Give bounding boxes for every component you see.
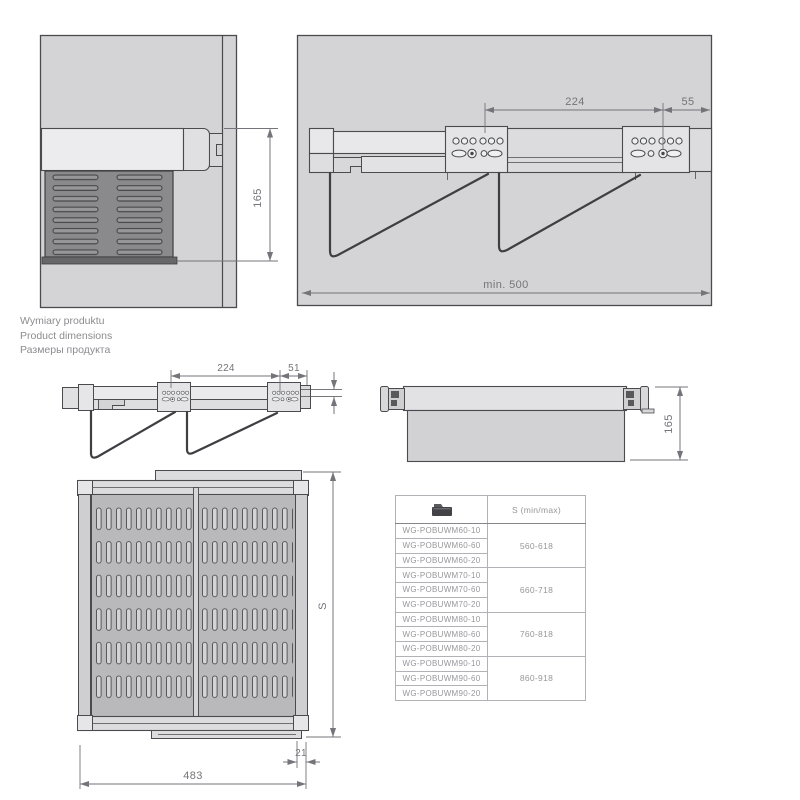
- dim-label-front-224: 224: [217, 363, 235, 374]
- dim-label-cabinet-165: 165: [252, 188, 264, 208]
- rail-top-bar: [334, 132, 448, 154]
- catalog-page: 165 224: [0, 0, 800, 800]
- table-row: WG-POBUWM80-10 760-818: [396, 612, 586, 627]
- product-code: WG-POBUWM70-20: [396, 597, 488, 612]
- product-code: WG-POBUWM70-10: [396, 568, 488, 583]
- caption-block: Wymiary produktu Product dimensions Разм…: [20, 314, 112, 358]
- size-table: S (min/max) WG-POBUWM60-10 560-618 WG-PO…: [395, 495, 586, 701]
- product-code: WG-POBUWM80-20: [396, 642, 488, 657]
- dim-label-front-51: 51: [288, 363, 300, 374]
- wall-rail-view: [298, 36, 712, 306]
- size-range: 860-918: [488, 656, 586, 700]
- dim-label-depth-S: S: [317, 602, 329, 610]
- product-code: WG-POBUWM60-60: [396, 538, 488, 553]
- product-code: WG-POBUWM90-20: [396, 686, 488, 701]
- product-column-header: [396, 496, 488, 524]
- mounting-plate-right: [623, 127, 690, 173]
- dim-label-offset-21: 21: [295, 748, 307, 759]
- drawer-folder-icon: [431, 503, 453, 517]
- size-column-header: S (min/max): [488, 496, 586, 524]
- cabinet-section-view: [41, 36, 237, 308]
- dim-label-offset-55: 55: [681, 96, 694, 108]
- front-plate-right: [268, 383, 301, 412]
- product-code: WG-POBUWM60-20: [396, 553, 488, 568]
- size-range: 760-818: [488, 612, 586, 656]
- caption-ru: Размеры продукта: [20, 343, 112, 358]
- product-code: WG-POBUWM80-10: [396, 612, 488, 627]
- front-rail-view: [63, 383, 343, 458]
- size-range: 560-618: [488, 524, 586, 568]
- telescopic-track: [508, 129, 624, 173]
- rail-bracket: [184, 129, 210, 171]
- basket-top-view: [78, 471, 309, 739]
- caption-en: Product dimensions: [20, 329, 112, 344]
- table-row: WG-POBUWM90-10 860-918: [396, 656, 586, 671]
- dim-label-min-depth: min. 500: [483, 279, 528, 291]
- basket-side-view: [381, 387, 655, 462]
- back-rail: [156, 471, 302, 481]
- side-rail-left: [79, 495, 91, 717]
- size-range: 660-718: [488, 568, 586, 612]
- dim-label-span-224: 224: [565, 96, 585, 108]
- side-rail-right: [296, 495, 308, 717]
- table-row: WG-POBUWM60-10 560-618: [396, 524, 586, 539]
- hanger-hook-left: [91, 411, 175, 458]
- hanger-hook-right: [187, 412, 277, 454]
- side-bracket-left: [381, 387, 389, 412]
- center-divider: [194, 488, 199, 717]
- product-code: WG-POBUWM70-60: [396, 583, 488, 598]
- product-code: WG-POBUWM90-10: [396, 656, 488, 671]
- shelf-band: [42, 129, 184, 171]
- caption-pl: Wymiary produktu: [20, 314, 112, 329]
- dim-label-width-483: 483: [183, 770, 203, 782]
- product-code: WG-POBUWM90-60: [396, 671, 488, 686]
- mounting-plate-left: [446, 127, 508, 173]
- dim-label-side-165: 165: [663, 414, 675, 434]
- front-plate-left: [158, 383, 191, 412]
- table-row: WG-POBUWM70-10 660-718: [396, 568, 586, 583]
- product-code: WG-POBUWM60-10: [396, 524, 488, 539]
- product-code: WG-POBUWM80-60: [396, 627, 488, 642]
